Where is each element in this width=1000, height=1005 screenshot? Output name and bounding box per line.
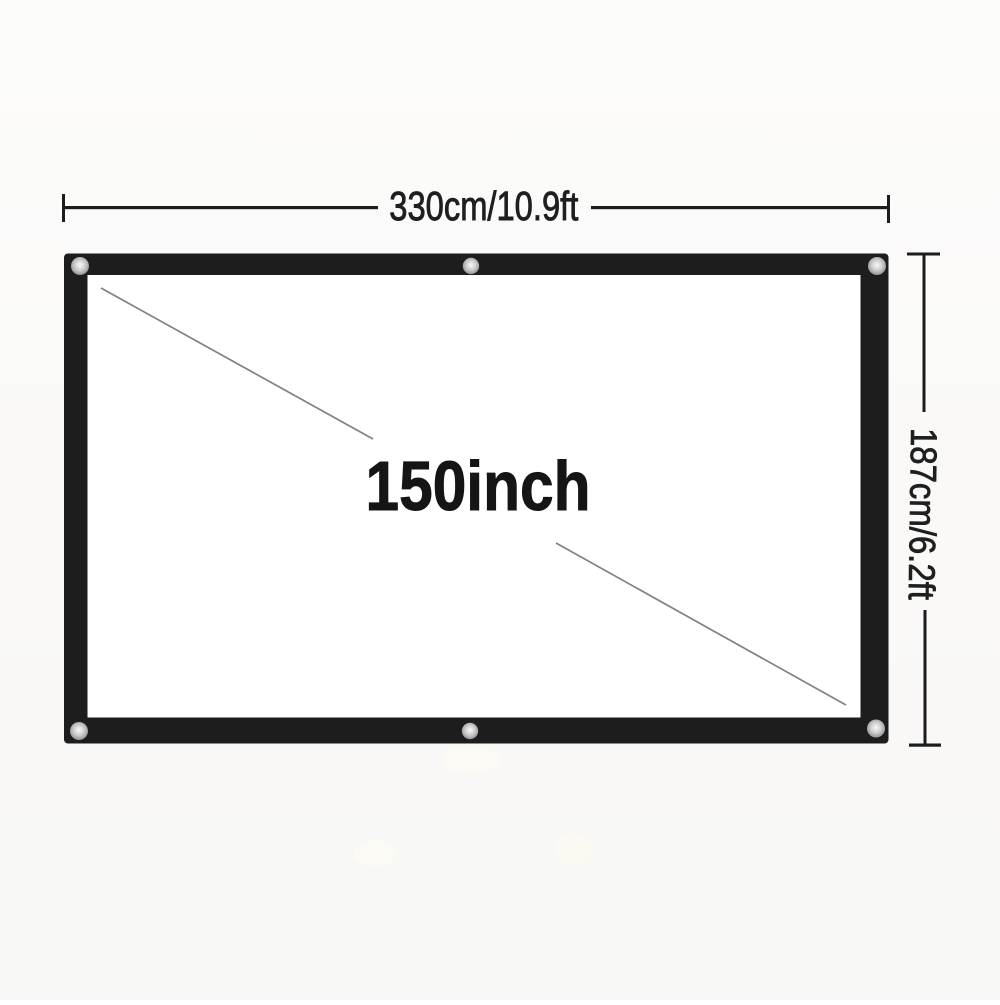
svg-text:187cm/6.2ft: 187cm/6.2ft [901, 428, 944, 601]
svg-text:150inch: 150inch [366, 447, 591, 525]
svg-text:330cm/10.9ft: 330cm/10.9ft [389, 183, 578, 229]
